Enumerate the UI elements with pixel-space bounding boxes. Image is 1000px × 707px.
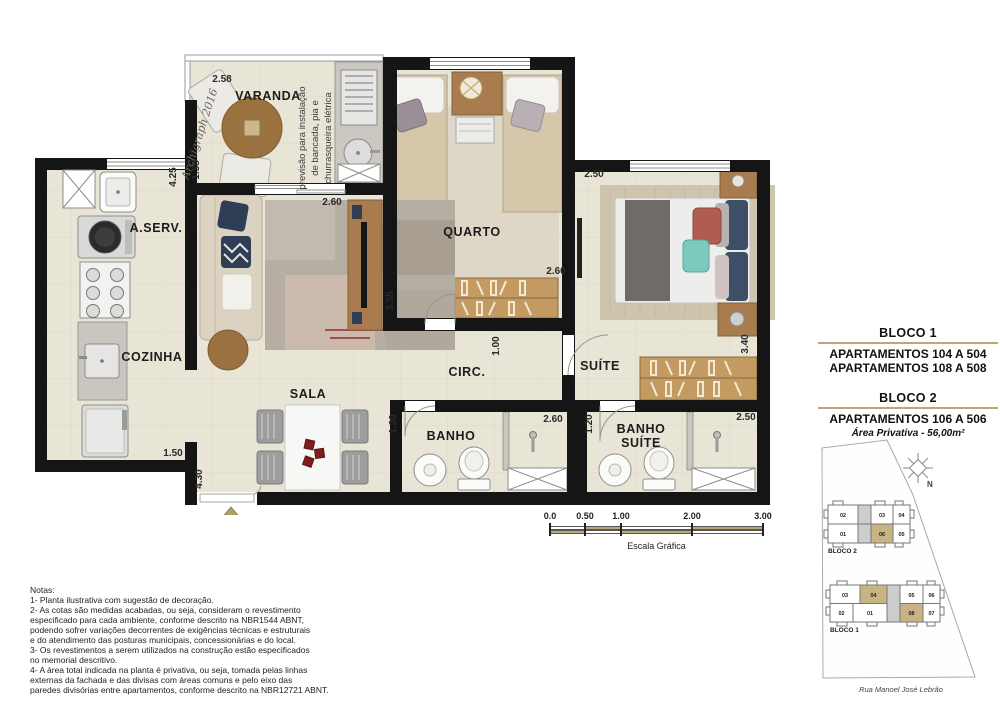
note-line: podendo sofrer variações decorrentes de … (30, 625, 360, 635)
site-bloco2: 02 03 04 01 06 05 (824, 501, 914, 547)
suite-tv (577, 218, 582, 278)
scale-label-100: 1.00 (612, 511, 630, 521)
unit-label: 01 (867, 611, 873, 617)
room-label-aserv: A.SERV. (130, 221, 183, 235)
street-label: Rua Manoel José Lebrão (859, 685, 943, 694)
note-line: 1- Planta ilustrativa com sugestão de de… (30, 595, 360, 605)
scale-label-200: 2.00 (683, 511, 701, 521)
stove (80, 262, 130, 318)
unit-label: 06 (879, 532, 885, 538)
bloco1-title: BLOCO 1 (818, 326, 998, 340)
room-label-suite: SUÍTE (580, 358, 620, 373)
dim-sala-length: 4.30 (194, 469, 205, 489)
double-bed (615, 198, 750, 303)
room-label-varanda: VARANDA (235, 89, 301, 103)
twin-bed-right (503, 75, 562, 212)
tv-rack (348, 200, 382, 330)
entry-arrow (220, 507, 242, 515)
note-line: 2- As cotas são medidas acabadas, ou sej… (30, 605, 360, 615)
site-bloco1-label: BLOCO 1 (830, 627, 859, 634)
room-label-quarto: QUARTO (443, 225, 501, 239)
dim-quarto-depth: 3.55 (385, 291, 396, 311)
note-line: 4- A área total indicada na planta é pri… (30, 665, 360, 675)
site-boundary (822, 440, 975, 678)
note-line: paredes divisórias entre apartamentos, c… (30, 685, 360, 695)
fridge (82, 405, 128, 457)
sofa (200, 195, 262, 340)
scale-label-0: 0.0 (544, 511, 557, 521)
note-line: e do atendimento das posturas municipais… (30, 635, 360, 645)
unit-label: 02 (840, 513, 846, 519)
unit-label: 05 (898, 532, 904, 538)
dim-varanda-width: 2.58 (212, 74, 232, 85)
note-line: especificado para cada ambiente, conform… (30, 615, 360, 625)
banho-toilet (458, 447, 490, 490)
quarto-desk (452, 72, 502, 143)
scale-label-050: 0.50 (576, 511, 594, 521)
site-bloco1: 03 04 05 06 02 01 08 07 (826, 581, 944, 626)
varanda-note-line3: churrasqueira elétrica (323, 92, 334, 184)
dim-banho-suite-width: 2.50 (736, 412, 756, 423)
graphic-scale: 0.0 0.50 1.00 2.00 3.00 Escala Gráfica (545, 511, 775, 557)
bloco1-apartments-1: APARTAMENTOS 104 A 504 (818, 348, 998, 361)
bloco2-title: BLOCO 2 (818, 391, 998, 405)
unit-label: 01 (840, 532, 846, 538)
room-label-cozinha: COZINHA (121, 350, 182, 364)
site-plan: N 02 03 04 01 06 05 BLOCO 2 (815, 435, 995, 697)
kitchen-counter (78, 322, 127, 400)
unit-label: 04 (898, 513, 905, 519)
north-label: N (927, 480, 933, 489)
note-line: externas da fachada e das divisas com ár… (30, 675, 360, 685)
scale-label-300: 3.00 (754, 511, 772, 521)
bloco1-apartments-2: APARTAMENTOS 108 A 508 (818, 362, 998, 375)
notes-block: Notas: 1- Planta ilustrativa com sugestã… (30, 585, 360, 695)
note-line: no memorial descritivo. (30, 655, 360, 665)
site-bloco2-label: BLOCO 2 (828, 548, 857, 555)
dim-suite-depth: 3.40 (740, 334, 751, 354)
north-compass-icon (903, 453, 933, 483)
varanda-note-line2: de bancada, pia e (310, 100, 321, 176)
dim-banho-width: 2.60 (543, 414, 563, 425)
side-table (208, 330, 248, 370)
unit-label: 08 (908, 611, 914, 617)
washing-machine (78, 216, 135, 258)
unit-label: 06 (928, 593, 934, 599)
unit-label: 02 (838, 611, 844, 617)
scale-caption: Escala Gráfica (545, 541, 768, 551)
unit-label: 04 (870, 593, 877, 599)
unit-label: 03 (842, 593, 848, 599)
unit-label: 07 (928, 611, 934, 617)
floor-plan: VARANDA QUARTO A.SERV. COZINHA SALA CIRC… (25, 50, 775, 515)
room-label-banho-suite-1: BANHO (617, 422, 666, 436)
dim-quarto-width: 2.60 (546, 266, 566, 277)
dim-banho-depth: 1.20 (388, 414, 399, 434)
note-line: 3- Os revestimentos a serem utilizados n… (30, 645, 360, 655)
divider (818, 407, 998, 409)
banho-suite-toilet (643, 447, 675, 490)
dim-circ-width: 1.00 (491, 336, 502, 356)
room-label-circ: CIRC. (448, 365, 485, 379)
suite-wardrobe (640, 357, 757, 400)
dim-cozinha-width: 1.50 (163, 448, 183, 459)
dim-sala-width: 2.60 (322, 197, 342, 208)
dim-suite-width: 2.50 (584, 169, 604, 180)
quarto-wardrobe (452, 278, 558, 318)
block-info: BLOCO 1 APARTAMENTOS 104 A 504 APARTAMEN… (818, 326, 998, 439)
floor-plan-page: VARANDA QUARTO A.SERV. COZINHA SALA CIRC… (0, 0, 1000, 707)
room-label-sala: SALA (290, 387, 326, 401)
room-label-banho-suite-2: SUÍTE (621, 435, 661, 450)
dim-banho-suite-depth: 1.20 (584, 414, 595, 434)
dim-aserv-length: 4.25 (168, 167, 179, 187)
notes-title: Notas: (30, 585, 360, 595)
bloco2-apartments-1: APARTAMENTOS 106 A 506 (818, 413, 998, 426)
divider (818, 342, 998, 344)
room-label-banho: BANHO (427, 429, 476, 443)
varanda-note: previsão para instalação de bancada, pia… (297, 87, 334, 190)
unit-label: 03 (879, 513, 885, 519)
tv (361, 222, 367, 308)
varanda-note-line1: previsão para instalação (297, 87, 308, 190)
unit-label: 05 (908, 593, 914, 599)
